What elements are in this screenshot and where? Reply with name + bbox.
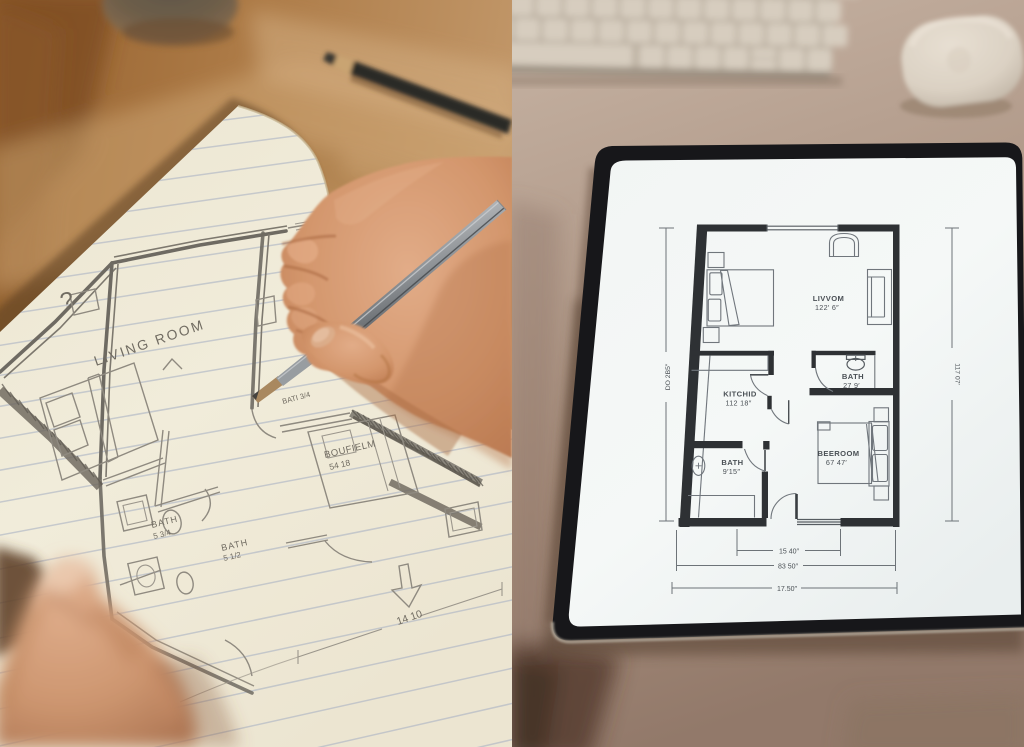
svg-text:9′15″: 9′15″ — [723, 467, 741, 476]
svg-text:BEEROOM: BEEROOM — [817, 449, 859, 458]
svg-text:BATH: BATH — [842, 372, 864, 381]
svg-text:117 07′: 117 07′ — [954, 363, 961, 385]
svg-text:17.50″: 17.50″ — [777, 586, 798, 593]
svg-text:KITCHID: KITCHID — [723, 390, 757, 399]
svg-text:27 9′: 27 9′ — [843, 381, 860, 390]
svg-text:122′ 6″: 122′ 6″ — [815, 303, 839, 312]
svg-text:BATH: BATH — [721, 458, 743, 467]
svg-text:15 40″: 15 40″ — [779, 549, 800, 556]
svg-text:67 47′: 67 47′ — [826, 458, 847, 467]
svg-text:112 18″: 112 18″ — [725, 399, 751, 408]
svg-text:83 50″: 83 50″ — [778, 564, 799, 571]
svg-text:DO 2B5″: DO 2B5″ — [665, 363, 672, 390]
svg-text:LIVVOM: LIVVOM — [813, 294, 845, 303]
